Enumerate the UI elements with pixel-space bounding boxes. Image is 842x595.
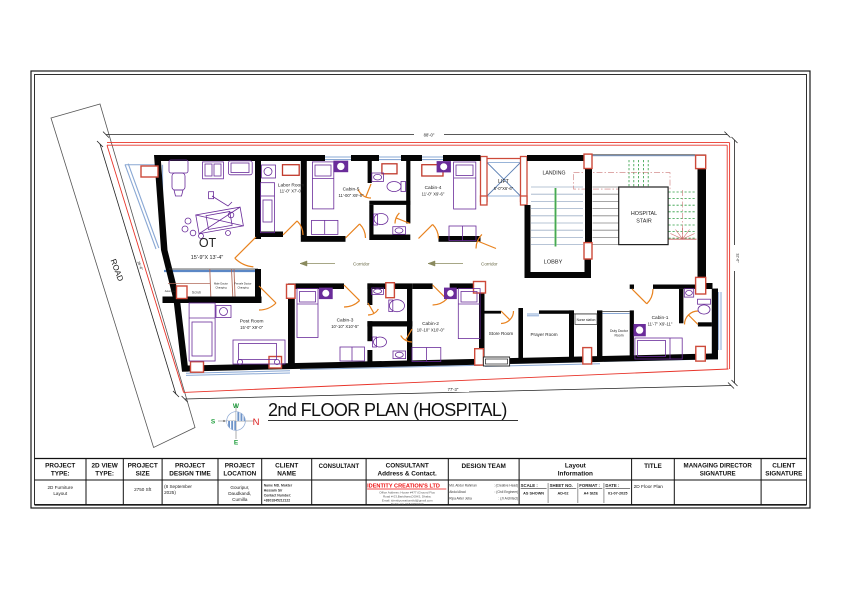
svg-text:Female Doctor: Female Doctor — [234, 282, 251, 286]
svg-text:: (Jr Architect): : (Jr Architect) — [498, 497, 518, 501]
svg-text:11'-00" X9'-6": 11'-00" X9'-6" — [339, 193, 364, 198]
svg-text:STAIR: STAIR — [636, 219, 652, 225]
svg-text:15'-9"X 13'-4": 15'-9"X 13'-4" — [191, 255, 224, 261]
svg-text:LOBBY: LOBBY — [544, 260, 563, 266]
svg-text:PROJECT: PROJECT — [175, 463, 205, 470]
svg-text:(8 September: (8 September — [164, 484, 192, 489]
svg-text:DATE :: DATE : — [605, 483, 620, 488]
svg-text:Name MD. Mokter: Name MD. Mokter — [264, 484, 293, 488]
svg-text:77'-3": 77'-3" — [448, 387, 459, 392]
svg-text:2025): 2025) — [164, 490, 176, 495]
svg-text:Hossain Sir: Hossain Sir — [264, 489, 283, 493]
svg-text:10'-10" X10'-5": 10'-10" X10'-5" — [331, 324, 359, 329]
svg-text:Cabin-1: Cabin-1 — [652, 315, 669, 321]
svg-text:SIGNATURE: SIGNATURE — [700, 471, 736, 478]
svg-text:Layout: Layout — [565, 463, 587, 470]
svg-text:PROJECT: PROJECT — [225, 463, 255, 470]
svg-text:SIZE: SIZE — [136, 471, 151, 478]
svg-text:SCALE :: SCALE : — [521, 483, 539, 488]
svg-text:Ripa Akter Jeba: Ripa Akter Jeba — [449, 497, 472, 501]
svg-text:15'-0" X9'-0": 15'-0" X9'-0" — [240, 325, 263, 330]
svg-text:32'-6": 32'-6" — [736, 253, 740, 263]
svg-text:S: S — [211, 419, 216, 426]
svg-text:Cabin-3: Cabin-3 — [337, 318, 354, 324]
svg-text:: (Civil Engineer): : (Civil Engineer) — [495, 490, 519, 494]
svg-text:CONSULTANT: CONSULTANT — [386, 463, 429, 470]
svg-text:SIGNATURE: SIGNATURE — [765, 471, 803, 478]
svg-text:Information: Information — [558, 471, 593, 478]
svg-text:TITLE: TITLE — [644, 463, 662, 470]
svg-text:2D Furniture: 2D Furniture — [47, 485, 73, 490]
svg-text:DESIGN TIME: DESIGN TIME — [169, 471, 211, 478]
svg-text:2750 Sft: 2750 Sft — [134, 487, 152, 492]
svg-text:E: E — [234, 440, 239, 447]
svg-text:6'-0"X6'-6": 6'-0"X6'-6" — [494, 186, 514, 191]
svg-text:Cabin-5: Cabin-5 — [343, 187, 360, 193]
svg-text:Cabin-4: Cabin-4 — [425, 185, 442, 191]
svg-text:SHEET NO.: SHEET NO. — [550, 483, 573, 488]
svg-text:Changing: Changing — [237, 286, 249, 290]
svg-text:2D Floor Plan: 2D Floor Plan — [634, 484, 664, 490]
svg-text:Autoclave: Autoclave — [165, 290, 176, 293]
svg-text:Prayer Room: Prayer Room — [530, 332, 557, 337]
svg-text:PROJECT: PROJECT — [128, 463, 158, 470]
svg-text:FORMAT :: FORMAT : — [579, 483, 600, 488]
svg-text:11'-0" X7'-0": 11'-0" X7'-0" — [280, 189, 303, 194]
svg-text:Male Doctor: Male Doctor — [214, 282, 228, 286]
svg-text:: (Creative Head): : (Creative Head) — [494, 484, 518, 488]
svg-text:Cabin-2: Cabin-2 — [422, 321, 439, 327]
svg-text:Labor Room: Labor Room — [278, 183, 304, 189]
svg-text:Post Room: Post Room — [240, 318, 264, 324]
svg-text:CLIENT: CLIENT — [275, 463, 298, 470]
svg-text:OT: OT — [199, 236, 217, 250]
svg-text:11'-0" X9'-6": 11'-0" X9'-6" — [422, 192, 445, 197]
svg-text:Scrub: Scrub — [192, 291, 201, 295]
svg-text:Changing: Changing — [215, 286, 227, 290]
svg-text:Cumilla: Cumilla — [232, 497, 248, 502]
svg-text:Corridor: Corridor — [481, 261, 498, 266]
svg-text:TYPE:: TYPE: — [95, 471, 114, 478]
svg-text:DESIGN TEAM: DESIGN TEAM — [462, 463, 506, 470]
svg-text:CONSULTANT: CONSULTANT — [319, 464, 360, 470]
svg-text:Gouripur,: Gouripur, — [230, 485, 249, 490]
svg-text:IDENTITY CREATION'S LTD: IDENTITY CREATION'S LTD — [367, 484, 440, 490]
svg-text:PROJECT: PROJECT — [45, 463, 75, 470]
svg-text:Layout: Layout — [53, 491, 68, 496]
svg-text:Md. Abdur Rahman: Md. Abdur Rahman — [449, 484, 477, 488]
svg-text:Duty Doctor: Duty Doctor — [610, 329, 629, 333]
svg-text:Abdul Ahad: Abdul Ahad — [449, 490, 466, 494]
svg-text:01-07-2025: 01-07-2025 — [608, 492, 627, 496]
svg-text:W: W — [233, 403, 240, 410]
svg-text:Contact Number:: Contact Number: — [264, 494, 292, 498]
svg-text:TYPE:: TYPE: — [51, 471, 70, 478]
svg-text:AD-02: AD-02 — [557, 492, 568, 496]
svg-text:Room: Room — [614, 334, 623, 338]
svg-text:MANAGING DIRECTOR: MANAGING DIRECTOR — [684, 463, 753, 470]
svg-text:11'-7" X9'-11": 11'-7" X9'-11" — [648, 322, 673, 327]
svg-text:88'-0": 88'-0" — [424, 133, 435, 138]
svg-text:A4 SIZE: A4 SIZE — [584, 492, 599, 496]
svg-text:Corridor: Corridor — [353, 261, 370, 266]
svg-text:N: N — [253, 417, 260, 428]
svg-text:HOSPITAL: HOSPITAL — [631, 211, 657, 217]
svg-text:AS SHOWN: AS SHOWN — [523, 492, 544, 496]
svg-text:Daudkandi,: Daudkandi, — [228, 491, 251, 496]
svg-text:LANDING: LANDING — [542, 171, 565, 177]
svg-text:Address & Contact.: Address & Contact. — [378, 471, 438, 478]
svg-text:Store Room: Store Room — [489, 331, 514, 336]
svg-text:LOCATION: LOCATION — [223, 471, 256, 478]
svg-text:10'-10" X10'-0": 10'-10" X10'-0" — [417, 328, 445, 333]
svg-text:2nd FLOOR PLAN (HOSPITAL): 2nd FLOOR PLAN (HOSPITAL) — [268, 400, 507, 420]
svg-text:2D VIEW: 2D VIEW — [92, 463, 119, 470]
svg-text:Mobile No 01843350409: Mobile No 01843350409 — [391, 502, 424, 506]
svg-text:CLIENT: CLIENT — [772, 463, 795, 470]
svg-text:NAME: NAME — [277, 471, 297, 478]
svg-text:+8801845212122: +8801845212122 — [264, 499, 291, 503]
svg-text:LIFT: LIFT — [498, 179, 509, 185]
svg-text:Nurse station: Nurse station — [577, 318, 596, 322]
